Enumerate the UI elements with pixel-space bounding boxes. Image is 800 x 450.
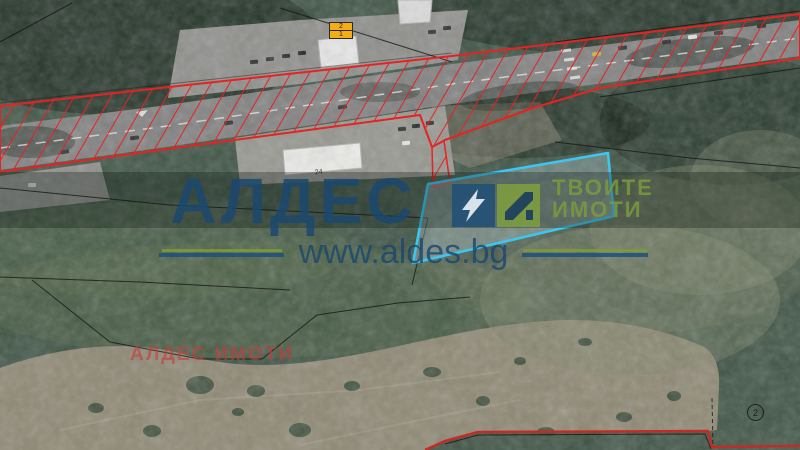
satellite-map-image[interactable]: АЛДЕС ТВОИТЕ ИМОТИ www.aldes.bg АЛДЕС ИМ… (0, 0, 800, 450)
map-canvas (0, 0, 800, 450)
